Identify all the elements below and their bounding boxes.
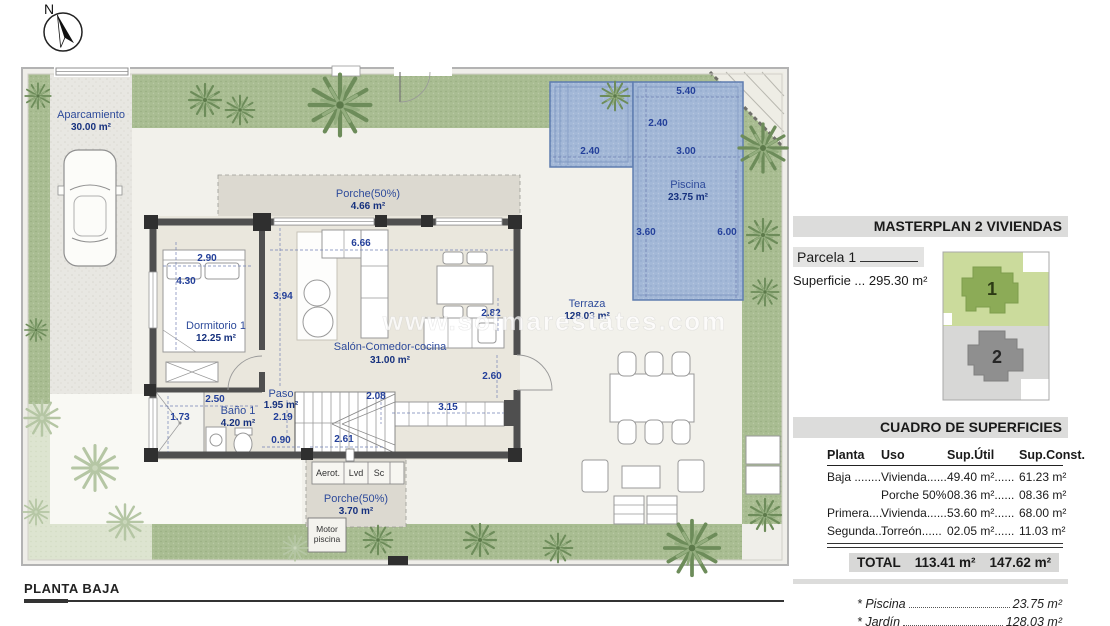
dim-pool-step-h: 2.40: [648, 118, 668, 129]
dim-paso-height: 2.19: [273, 412, 293, 423]
dim-bedroom-width: 2.90: [197, 253, 217, 264]
washbasin: [206, 427, 226, 453]
area-paso: 1.95 m²: [264, 400, 299, 411]
area-porche-top: 4.66 m²: [351, 201, 386, 212]
dim-pool-right-depth: 6.00: [717, 227, 737, 238]
dining-table-outdoor: [610, 352, 694, 444]
porch-door-marker: [346, 449, 354, 461]
title-underline-tick: [24, 599, 68, 603]
label-aparcamiento: Aparcamiento: [57, 109, 125, 121]
dim-pool-top: 5.40: [676, 86, 696, 97]
parcela-label: Parcela 1: [793, 247, 924, 267]
dim-pool-mid: 3.00: [676, 146, 696, 157]
surfaces-table: Planta Uso Sup.Útil Sup.Const. Baja ....…: [827, 448, 1063, 548]
table-row: Segunda... Torreón...... 02.05 m²...... …: [827, 524, 1063, 538]
motor-label-2: piscina: [314, 534, 341, 544]
wardrobe: [166, 362, 218, 382]
page-title: PLANTA BAJA: [24, 581, 120, 596]
toilet: [234, 428, 252, 455]
dim-bath-door: 0.90: [271, 435, 291, 446]
car: [58, 150, 122, 266]
motor-label-1: Motor: [316, 524, 338, 534]
col-planta: Planta: [827, 448, 881, 462]
area-salon: 31.00 m²: [370, 355, 411, 366]
grass-bottom: [152, 524, 742, 560]
parcela-section: Parcela 1 Superficie ... 295.30 m² 1 2: [793, 247, 1068, 417]
cuadro-title-bar: CUADRO DE SUPERFICIES: [793, 417, 1068, 438]
extras-list: * Piscina23.75 m² * Jardín128.03 m² * Só…: [857, 593, 1062, 626]
total-divider: [827, 543, 1063, 548]
total-const: 147.62 m²: [990, 555, 1052, 570]
table-row: Baja ........ Vivienda...... 49.40 m²...…: [827, 470, 1063, 484]
dim-terrace-door: 2.60: [482, 371, 502, 382]
col-sup-const: Sup.Const.: [1019, 448, 1083, 462]
label-bano: Baño 1: [221, 405, 256, 417]
dim-bath-width: 2.50: [205, 394, 225, 405]
label-salon: Salón-Comedor-cocina: [334, 341, 447, 353]
area-bano: 4.20 m²: [221, 418, 256, 429]
total-label: TOTAL: [857, 555, 901, 570]
watermark: www.solmarestates.com: [382, 306, 728, 336]
aerot-label: Aerot.: [316, 468, 340, 478]
label-porche-bottom: Porche(50%): [324, 493, 388, 505]
label-piscina: Piscina: [670, 179, 706, 191]
area-porche-bottom: 3.70 m²: [339, 506, 374, 517]
area-aparcamiento: 30.00 m²: [71, 122, 112, 133]
dim-stair-height: 2.08: [366, 391, 386, 402]
garage-gate: [54, 66, 130, 77]
title-underline: [24, 600, 784, 602]
shower: [156, 392, 204, 455]
col-uso: Uso: [881, 448, 947, 462]
label-dormitorio: Dormitorio 1: [186, 320, 246, 332]
dim-shower-height: 1.73: [170, 412, 190, 423]
grass-bottom-pale: [28, 524, 152, 560]
pool-motor-box: Motor piscina: [308, 518, 346, 552]
site-minimap: 1 2: [942, 251, 1050, 401]
label-paso: Paso: [268, 388, 293, 400]
total-bar: TOTAL 113.41 m² 147.62 m²: [849, 553, 1059, 572]
label-porche-top: Porche(50%): [336, 188, 400, 200]
list-item: * Jardín128.03 m²: [857, 611, 1062, 626]
surfaces-table-header: Planta Uso Sup.Útil Sup.Const.: [827, 448, 1063, 466]
table-row: Primera.... Vivienda...... 53.60 m².....…: [827, 506, 1063, 520]
dim-kitchen-counter: 3.15: [438, 402, 458, 413]
sc-label: Sc: [374, 468, 385, 478]
dim-hall-height: 3.94: [273, 291, 293, 302]
minimap-house-1-number: 1: [987, 279, 997, 299]
masterplan-title-bar: MASTERPLAN 2 VIVIENDAS: [793, 216, 1068, 237]
area-piscina: 23.75 m²: [668, 192, 709, 203]
north-compass-icon: N: [44, 1, 82, 51]
table-row: Porche 50% 08.36 m²...... 08.36 m²: [827, 488, 1063, 502]
dim-pool-left-depth: 3.60: [636, 227, 656, 238]
lvd-label: Lvd: [349, 468, 364, 478]
info-panel: MASTERPLAN 2 VIVIENDAS Parcela 1 Superfi…: [793, 216, 1068, 626]
total-util: 113.41 m²: [915, 555, 976, 570]
panel-divider: [793, 579, 1068, 584]
minimap-house-2-number: 2: [992, 347, 1002, 367]
grass-left: [28, 74, 50, 404]
dim-salon-width: 6.66: [351, 238, 371, 249]
dim-pool-step-w: 2.40: [580, 146, 600, 157]
list-item: * Piscina23.75 m²: [857, 593, 1062, 611]
area-dormitorio: 12.25 m²: [196, 333, 237, 344]
utility-boxes: Aerot. Lvd Sc: [312, 462, 404, 484]
dim-bedroom-height: 4.30: [176, 276, 196, 287]
dim-stair-width: 2.61: [334, 434, 354, 445]
col-sup-util: Sup.Útil: [947, 448, 1019, 462]
north-label: N: [44, 1, 54, 17]
floor-plan-page: Aerot. Lvd Sc Motor piscina: [0, 0, 1110, 626]
